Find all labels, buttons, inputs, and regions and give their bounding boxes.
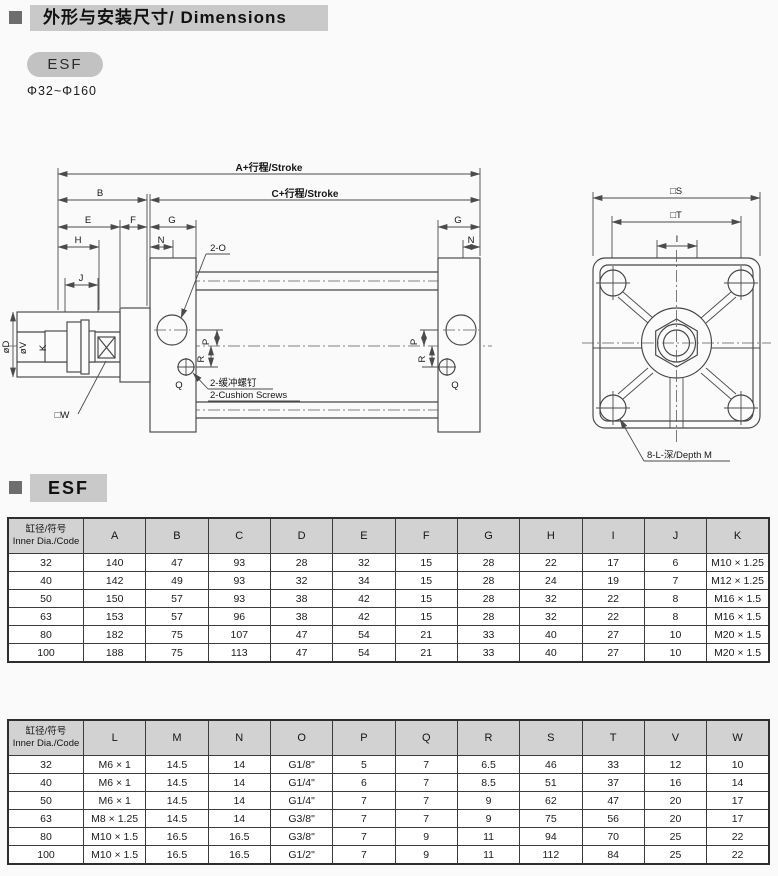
table-cell: 47 xyxy=(270,626,332,644)
row-header-cell: 40 xyxy=(8,572,84,590)
table-cell: 33 xyxy=(457,626,519,644)
table-cell: 94 xyxy=(520,828,582,846)
table-cell: 33 xyxy=(457,644,519,663)
table-cell: 47 xyxy=(270,644,332,663)
column-header: T xyxy=(582,720,644,756)
table-cell: 7 xyxy=(333,810,395,828)
dim-label-j: J xyxy=(79,273,84,284)
table-cell: 19 xyxy=(582,572,644,590)
table-cell: 93 xyxy=(208,590,270,608)
column-header: W xyxy=(707,720,769,756)
table-cell: 8.5 xyxy=(457,774,519,792)
table-cell: 7 xyxy=(395,810,457,828)
table-cell: 14 xyxy=(208,774,270,792)
table-cell: 21 xyxy=(395,644,457,663)
dimensions-table-1: 缸径/符号 Inner Dia./CodeABCDEFGHIJK32140479… xyxy=(7,517,770,663)
table-cell: 15 xyxy=(395,590,457,608)
table-cell: 14 xyxy=(208,810,270,828)
dim-label-r-right: R xyxy=(417,355,428,362)
dim-label-e: E xyxy=(85,215,91,226)
dim-label-k: K xyxy=(38,344,49,351)
catalog-page: 外形与安装尺寸/ Dimensions ESF Φ32~Φ160 xyxy=(0,0,778,876)
dim-label-s: □S xyxy=(670,186,682,197)
dim-label-g-right: G xyxy=(454,215,461,226)
table-cell: 38 xyxy=(270,590,332,608)
dim-label-p-left: P xyxy=(201,339,212,345)
table-cell: 70 xyxy=(582,828,644,846)
table-row: 50M6 × 114.514G1/4"77962472017 xyxy=(8,792,769,810)
table-cell: 34 xyxy=(333,572,395,590)
table-cell: 7 xyxy=(333,846,395,865)
dim-label-c-stroke: C+行程/Stroke xyxy=(272,187,339,200)
table-cell: G1/8" xyxy=(270,756,332,774)
table-cell: 32 xyxy=(333,554,395,572)
table-cell: 16.5 xyxy=(208,846,270,865)
column-header: D xyxy=(270,518,332,554)
dim-label-h: H xyxy=(75,235,82,246)
table-cell: 153 xyxy=(84,608,146,626)
dim-label-n-left: N xyxy=(158,235,165,246)
column-header: A xyxy=(84,518,146,554)
dim-label-b: B xyxy=(97,188,103,199)
table-cell: 7 xyxy=(333,792,395,810)
row-header-cell: 100 xyxy=(8,644,84,663)
column-header-inner-dia: 缸径/符号 Inner Dia./Code xyxy=(8,720,84,756)
header-row: 缸径/符号 Inner Dia./CodeABCDEFGHIJK xyxy=(8,518,769,554)
table-cell: 11 xyxy=(457,828,519,846)
table-cell: 33 xyxy=(582,756,644,774)
table-cell: 15 xyxy=(395,608,457,626)
table-row: 6315357963842152832228M16 × 1.5 xyxy=(8,608,769,626)
dim-label-a-stroke: A+行程/Stroke xyxy=(236,161,303,174)
cushion-label-cn: 2-缓冲螺钉 xyxy=(210,377,257,389)
cushion-label-en: 2-Cushion Screws xyxy=(210,390,287,401)
table-cell: 47 xyxy=(582,792,644,810)
table-cell: 56 xyxy=(582,810,644,828)
table-cell: 10 xyxy=(644,644,706,663)
table-cell: 17 xyxy=(707,792,769,810)
table-cell: 142 xyxy=(84,572,146,590)
column-header: S xyxy=(520,720,582,756)
table-cell: 20 xyxy=(644,792,706,810)
table-cell: 14 xyxy=(707,774,769,792)
column-header: M xyxy=(146,720,208,756)
page-title: 外形与安装尺寸/ Dimensions xyxy=(30,5,328,31)
table-cell: 28 xyxy=(270,554,332,572)
table-row: 40M6 × 114.514G1/4"678.551371614 xyxy=(8,774,769,792)
table-cell: M6 × 1 xyxy=(84,756,146,774)
dim-label-q-left: Q xyxy=(175,380,182,391)
table-cell: 22 xyxy=(707,846,769,865)
row-header-cell: 32 xyxy=(8,554,84,572)
table-cell: 14.5 xyxy=(146,756,208,774)
dim-label-n-right: N xyxy=(468,235,475,246)
section-title: ESF xyxy=(30,474,107,502)
table-row: 100M10 × 1.516.516.5G1/2"7911112842522 xyxy=(8,846,769,865)
side-view-drawing: A+行程/Stroke C+行程/Stroke B E F G G H N N … xyxy=(0,150,560,470)
table-cell: 10 xyxy=(644,626,706,644)
column-header: G xyxy=(457,518,519,554)
table-cell: 9 xyxy=(395,828,457,846)
table-cell: 7 xyxy=(333,828,395,846)
table-cell: 188 xyxy=(84,644,146,663)
table-cell: 16.5 xyxy=(146,828,208,846)
table-cell: 96 xyxy=(208,608,270,626)
table-row: 80M10 × 1.516.516.5G3/8"791194702522 xyxy=(8,828,769,846)
table-cell: 14 xyxy=(208,792,270,810)
dim-label-i: I xyxy=(676,234,679,245)
table-cell: 49 xyxy=(146,572,208,590)
table-cell: 16.5 xyxy=(146,846,208,865)
table-cell: 32 xyxy=(520,590,582,608)
depth-label: 8-L-深/Depth M xyxy=(647,450,712,461)
column-header: B xyxy=(146,518,208,554)
table-cell: 62 xyxy=(520,792,582,810)
table-cell: M6 × 1 xyxy=(84,774,146,792)
table-row: 63M8 × 1.2514.514G3/8"77975562017 xyxy=(8,810,769,828)
table-cell: G3/8" xyxy=(270,828,332,846)
table-cell: 7 xyxy=(395,756,457,774)
row-header-cell: 63 xyxy=(8,810,84,828)
table-cell: 8 xyxy=(644,608,706,626)
table-cell: 8 xyxy=(644,590,706,608)
table-cell: 14.5 xyxy=(146,792,208,810)
row-header-cell: 63 xyxy=(8,608,84,626)
table-cell: 93 xyxy=(208,554,270,572)
table-cell: 9 xyxy=(457,810,519,828)
column-header: K xyxy=(707,518,769,554)
column-header: C xyxy=(208,518,270,554)
dimensions-table-2: 缸径/符号 Inner Dia./CodeLMNOPQRSTVW32M6 × 1… xyxy=(7,719,770,865)
table-cell: 16.5 xyxy=(208,828,270,846)
table-row: 5015057933842152832228M16 × 1.5 xyxy=(8,590,769,608)
table-cell: 93 xyxy=(208,572,270,590)
table-cell: M20 × 1.5 xyxy=(707,644,769,663)
table-row: 3214047932832152822176M10 × 1.25 xyxy=(8,554,769,572)
table-cell: 42 xyxy=(333,608,395,626)
table-cell: M16 × 1.5 xyxy=(707,590,769,608)
table-cell: 38 xyxy=(270,608,332,626)
dim-label-q-right: Q xyxy=(451,380,458,391)
section-bullet-icon xyxy=(9,11,22,24)
table-cell: M12 × 1.25 xyxy=(707,572,769,590)
column-header: F xyxy=(395,518,457,554)
table-cell: 28 xyxy=(457,590,519,608)
table-cell: 22 xyxy=(520,554,582,572)
table-cell: 12 xyxy=(644,756,706,774)
table-cell: M6 × 1 xyxy=(84,792,146,810)
table-cell: 75 xyxy=(146,626,208,644)
column-header: H xyxy=(520,518,582,554)
table-cell: 6.5 xyxy=(457,756,519,774)
table-cell: G1/4" xyxy=(270,792,332,810)
table-cell: 22 xyxy=(582,608,644,626)
table-cell: 75 xyxy=(520,810,582,828)
table-cell: 14 xyxy=(208,756,270,774)
table-cell: 14.5 xyxy=(146,774,208,792)
table-cell: M16 × 1.5 xyxy=(707,608,769,626)
row-header-cell: 100 xyxy=(8,846,84,865)
dim-label-od: øD xyxy=(1,341,12,354)
table-cell: 46 xyxy=(520,756,582,774)
table-cell: 27 xyxy=(582,644,644,663)
table-cell: 11 xyxy=(457,846,519,865)
dim-label-f: F xyxy=(130,215,136,226)
table-cell: 20 xyxy=(644,810,706,828)
column-header: N xyxy=(208,720,270,756)
table-cell: 24 xyxy=(520,572,582,590)
row-header-cell: 50 xyxy=(8,590,84,608)
table-row: 4014249933234152824197M12 × 1.25 xyxy=(8,572,769,590)
column-header: E xyxy=(333,518,395,554)
column-header: P xyxy=(333,720,395,756)
table-row: 801827510747542133402710M20 × 1.5 xyxy=(8,626,769,644)
table-cell: 150 xyxy=(84,590,146,608)
table-cell: G1/2" xyxy=(270,846,332,865)
row-header-cell: 32 xyxy=(8,756,84,774)
table-cell: 54 xyxy=(333,626,395,644)
dim-label-r-left: R xyxy=(196,355,207,362)
dim-label-g-left: G xyxy=(168,215,175,226)
dim-label-ov: øV xyxy=(18,341,29,354)
table-cell: 28 xyxy=(457,608,519,626)
table-cell: 7 xyxy=(395,774,457,792)
row-header-cell: 40 xyxy=(8,774,84,792)
table-cell: 9 xyxy=(457,792,519,810)
table-row: 32M6 × 114.514G1/8"576.546331210 xyxy=(8,756,769,774)
table-cell: M10 × 1.25 xyxy=(707,554,769,572)
table-cell: 28 xyxy=(457,554,519,572)
table-cell: G1/4" xyxy=(270,774,332,792)
column-header: Q xyxy=(395,720,457,756)
table-cell: 17 xyxy=(707,810,769,828)
table-cell: 22 xyxy=(582,590,644,608)
table-cell: 107 xyxy=(208,626,270,644)
table-cell: 57 xyxy=(146,608,208,626)
table-cell: 21 xyxy=(395,626,457,644)
section-bullet-icon xyxy=(9,481,22,494)
table-cell: 47 xyxy=(146,554,208,572)
table-cell: 5 xyxy=(333,756,395,774)
header-row: 缸径/符号 Inner Dia./CodeLMNOPQRSTVW xyxy=(8,720,769,756)
bore-range: Φ32~Φ160 xyxy=(27,84,97,98)
table-cell: 15 xyxy=(395,572,457,590)
column-header: L xyxy=(84,720,146,756)
dim-label-w: □W xyxy=(55,410,70,421)
table-cell: 32 xyxy=(520,608,582,626)
table-cell: 140 xyxy=(84,554,146,572)
table-cell: 25 xyxy=(644,828,706,846)
table-cell: G3/8" xyxy=(270,810,332,828)
table-cell: 32 xyxy=(270,572,332,590)
table-cell: 9 xyxy=(395,846,457,865)
table-cell: 22 xyxy=(707,828,769,846)
table-cell: 112 xyxy=(520,846,582,865)
table-cell: 25 xyxy=(644,846,706,865)
column-header: J xyxy=(644,518,706,554)
series-badge: ESF xyxy=(27,52,103,77)
table-cell: 14.5 xyxy=(146,810,208,828)
table-cell: M10 × 1.5 xyxy=(84,846,146,865)
table-cell: 6 xyxy=(333,774,395,792)
row-header-cell: 50 xyxy=(8,792,84,810)
table-cell: 27 xyxy=(582,626,644,644)
table-cell: 15 xyxy=(395,554,457,572)
table-cell: 40 xyxy=(520,626,582,644)
table-cell: 42 xyxy=(333,590,395,608)
column-header-inner-dia: 缸径/符号 Inner Dia./Code xyxy=(8,518,84,554)
table-cell: 28 xyxy=(457,572,519,590)
column-header: I xyxy=(582,518,644,554)
column-header: R xyxy=(457,720,519,756)
row-header-cell: 80 xyxy=(8,828,84,846)
table-cell: 7 xyxy=(395,792,457,810)
table-cell: 182 xyxy=(84,626,146,644)
table-cell: M8 × 1.25 xyxy=(84,810,146,828)
table-cell: 37 xyxy=(582,774,644,792)
table-cell: 57 xyxy=(146,590,208,608)
end-view-drawing: □S □T I 8-L-深/Depth M xyxy=(568,150,778,470)
row-header-cell: 80 xyxy=(8,626,84,644)
table-cell: 16 xyxy=(644,774,706,792)
table-cell: M20 × 1.5 xyxy=(707,626,769,644)
column-header: O xyxy=(270,720,332,756)
table-row: 1001887511347542133402710M20 × 1.5 xyxy=(8,644,769,663)
table-cell: 54 xyxy=(333,644,395,663)
column-header: V xyxy=(644,720,706,756)
table-cell: 7 xyxy=(644,572,706,590)
dim-label-t: □T xyxy=(670,210,682,221)
table-cell: M10 × 1.5 xyxy=(84,828,146,846)
table-cell: 84 xyxy=(582,846,644,865)
table-cell: 17 xyxy=(582,554,644,572)
table-cell: 6 xyxy=(644,554,706,572)
table-cell: 40 xyxy=(520,644,582,663)
dim-label-p-right: P xyxy=(409,339,420,345)
table-cell: 75 xyxy=(146,644,208,663)
table-cell: 51 xyxy=(520,774,582,792)
table-cell: 113 xyxy=(208,644,270,663)
table-cell: 10 xyxy=(707,756,769,774)
port-count-label: 2-O xyxy=(210,243,226,254)
